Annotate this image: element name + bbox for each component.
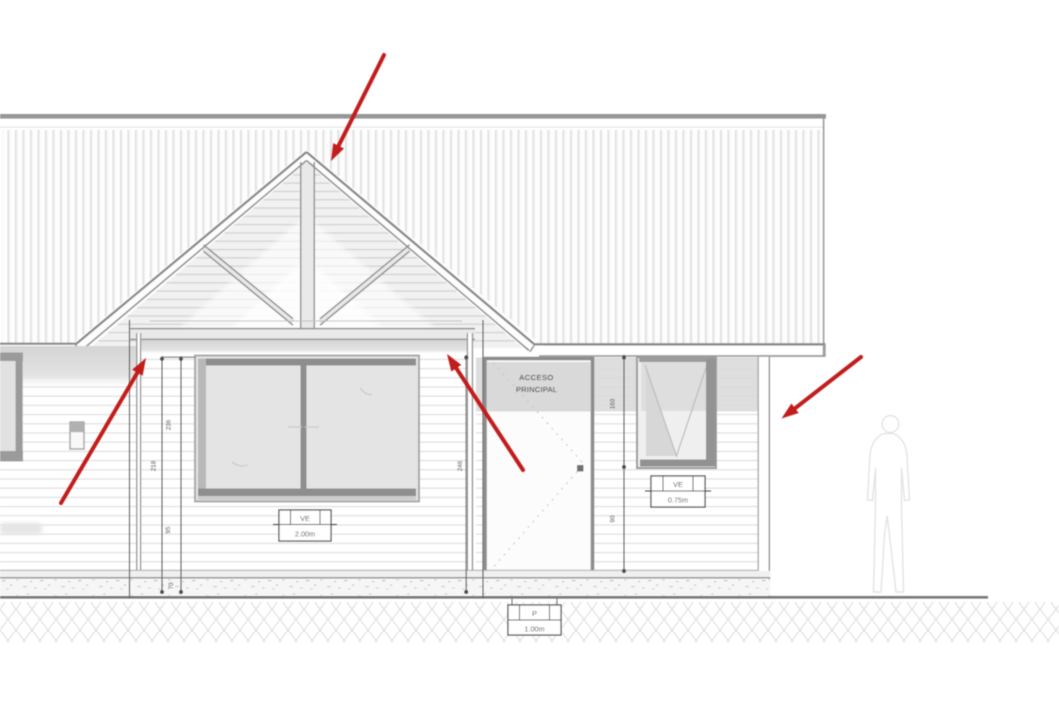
svg-text:PRINCIPAL: PRINCIPAL — [516, 385, 557, 394]
svg-text:95: 95 — [165, 526, 172, 533]
svg-text:2.00m: 2.00m — [295, 530, 315, 539]
svg-text:236: 236 — [166, 419, 173, 430]
svg-text:246: 246 — [457, 460, 464, 471]
svg-text:90: 90 — [610, 515, 617, 522]
svg-text:P: P — [532, 609, 537, 618]
svg-text:ACCESO: ACCESO — [519, 373, 553, 382]
svg-text:0.75m: 0.75m — [668, 496, 688, 505]
svg-text:218: 218 — [151, 460, 158, 471]
svg-text:160: 160 — [610, 398, 617, 409]
svg-text:VE: VE — [673, 480, 683, 489]
svg-text:1.00m: 1.00m — [524, 625, 544, 634]
svg-text:70: 70 — [168, 582, 175, 589]
svg-text:VE: VE — [300, 514, 310, 523]
